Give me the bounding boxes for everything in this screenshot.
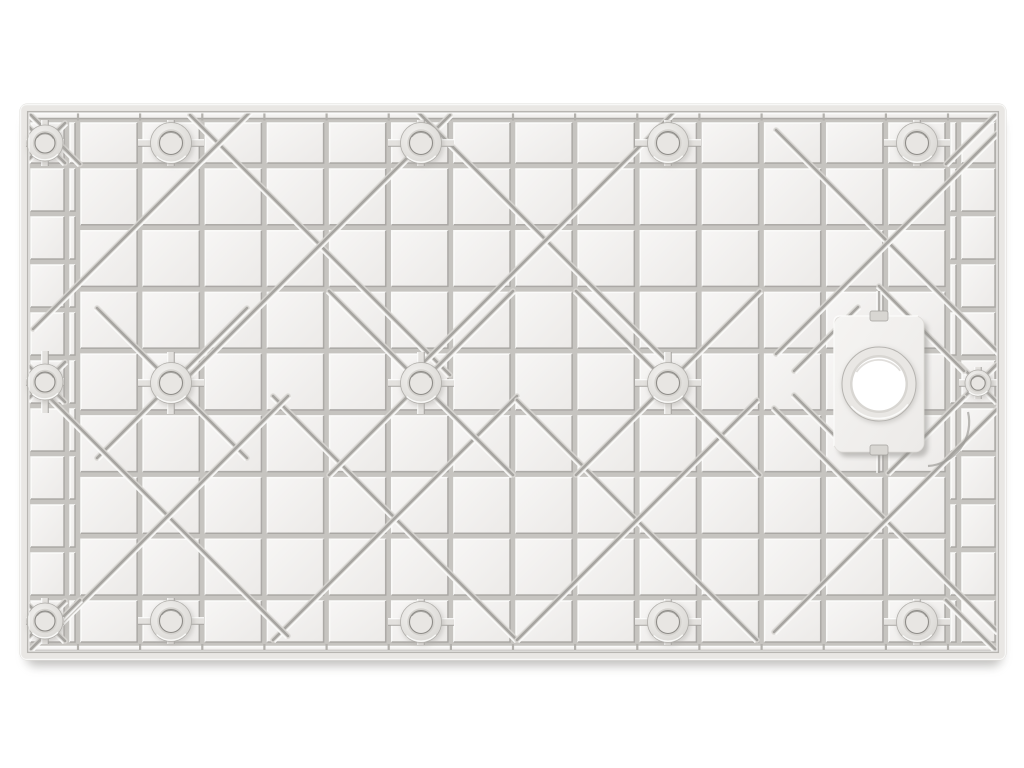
grid-cell <box>392 292 448 348</box>
tray-panel <box>20 104 1006 660</box>
drain-notch-bottom <box>870 445 888 455</box>
grid-cell <box>143 169 199 225</box>
grid-cell <box>81 354 137 410</box>
top-band-tick <box>761 113 763 121</box>
top-band-tick <box>388 113 390 121</box>
grid-cell <box>827 601 883 642</box>
grid-cell <box>143 231 199 287</box>
grid-cell <box>143 292 199 348</box>
grid-cell <box>454 231 510 287</box>
top-band-tick <box>885 113 887 121</box>
grid-cell <box>392 169 448 225</box>
grid-cell <box>578 354 634 410</box>
grid-cell <box>702 169 758 225</box>
grid-cell <box>702 539 758 595</box>
grid-cell <box>31 409 64 451</box>
grid-cell <box>330 123 386 163</box>
grid-cell <box>765 601 821 642</box>
bottom-band-tick <box>388 644 390 652</box>
grid-cell <box>143 478 199 534</box>
top-band-tick <box>201 113 203 121</box>
grid-cell <box>765 539 821 595</box>
grid-cell <box>267 478 323 534</box>
grid-cell <box>962 457 995 499</box>
bottom-band-tick <box>139 644 141 652</box>
grid-cell <box>31 217 64 259</box>
top-band-tick <box>823 113 825 121</box>
grid-cell <box>640 416 696 472</box>
grid-cell <box>516 123 572 163</box>
grid-cell <box>392 416 448 472</box>
bottom-band-tick <box>823 644 825 652</box>
grid-cell <box>765 354 821 410</box>
bottom-band-tick <box>450 644 452 652</box>
grid-cell <box>330 601 386 642</box>
grid-cell <box>205 231 261 287</box>
top-band-tick <box>326 113 328 121</box>
grid-cell <box>267 416 323 472</box>
grid-cell <box>330 354 386 410</box>
grid-cell <box>516 478 572 534</box>
bottom-band-tick <box>77 644 79 652</box>
bottom-band-tick <box>326 644 328 652</box>
grid-cell <box>31 169 64 211</box>
grid-cell <box>31 457 64 499</box>
grid-cell <box>765 478 821 534</box>
grid-cell <box>962 505 995 547</box>
grid-cell <box>330 169 386 225</box>
top-band-tick <box>698 113 700 121</box>
top-band-tick <box>636 113 638 121</box>
grid-cell <box>827 123 883 163</box>
bottom-band-tick <box>698 644 700 652</box>
bottom-band-tick <box>201 644 203 652</box>
grid-cell <box>31 553 64 595</box>
grid-cell <box>962 169 995 211</box>
grid-cell <box>81 601 137 642</box>
grid-cell <box>702 123 758 163</box>
top-band-tick <box>139 113 141 121</box>
grid-cell <box>392 231 448 287</box>
grid-cell <box>702 354 758 410</box>
top-band-tick <box>77 113 79 121</box>
grid-cell <box>578 601 634 642</box>
grid-cell <box>205 354 261 410</box>
bottom-band-tick <box>761 644 763 652</box>
grid-cell <box>267 123 323 163</box>
grid-cell <box>81 231 137 287</box>
grid-cell <box>267 292 323 348</box>
grid-cell <box>143 539 199 595</box>
grid-cell <box>516 354 572 410</box>
grid-cell <box>962 553 995 595</box>
bottom-band-tick <box>263 644 265 652</box>
drain-notch-top <box>870 311 888 321</box>
top-band-tick <box>263 113 265 121</box>
grid-cell <box>827 169 883 225</box>
grid-cell <box>267 539 323 595</box>
grid-cell <box>205 478 261 534</box>
grid-cell <box>81 478 137 534</box>
top-band-tick <box>947 113 949 121</box>
shower-tray-underside-photo <box>0 0 1024 768</box>
grid-cell <box>765 231 821 287</box>
grid-cell <box>454 478 510 534</box>
grid-cell <box>81 169 137 225</box>
bottom-band-tick <box>512 644 514 652</box>
grid-cell <box>330 231 386 287</box>
top-band-tick <box>574 113 576 121</box>
top-band-tick <box>512 113 514 121</box>
grid-cell <box>702 478 758 534</box>
grid-cell <box>640 231 696 287</box>
grid-cell <box>640 169 696 225</box>
bottom-band-tick <box>636 644 638 652</box>
grid-cell <box>330 539 386 595</box>
grid-cell <box>454 354 510 410</box>
grid-cell <box>516 292 572 348</box>
grid-cell <box>267 169 323 225</box>
grid-cell <box>205 601 261 642</box>
grid-cell <box>81 539 137 595</box>
grid-cell <box>81 123 137 163</box>
grid-cell <box>765 169 821 225</box>
drain-hole <box>853 358 906 411</box>
product-photo <box>0 0 1024 768</box>
grid-cell <box>31 505 64 547</box>
grid-cell <box>962 265 995 307</box>
grid-cell <box>143 416 199 472</box>
bottom-band-tick <box>885 644 887 652</box>
bottom-band-tick <box>574 644 576 652</box>
bottom-band-tick <box>947 644 949 652</box>
photo-stage <box>0 0 1024 768</box>
grid-cell <box>702 231 758 287</box>
grid-cell <box>889 231 945 287</box>
grid-cell <box>962 217 995 259</box>
grid-cell <box>516 539 572 595</box>
